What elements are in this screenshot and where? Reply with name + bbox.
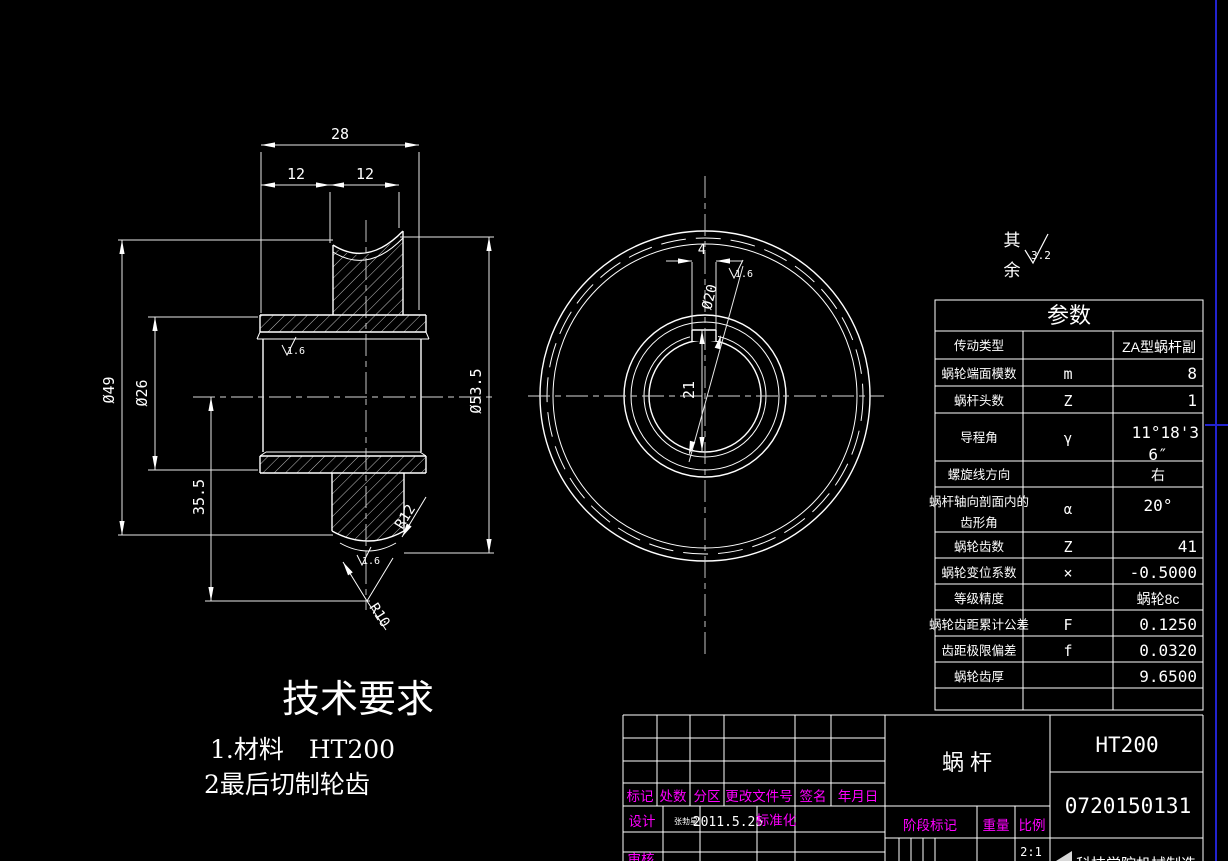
scale-value: 2:1 [1020, 845, 1042, 859]
cad-drawing-screen: 28 12 12 Ø49 Ø26 35.5 Ø53.5 R12 R10 1.6 … [0, 0, 1228, 861]
parameter-table: 参数 传动类型 ZA型蜗杆副 蜗轮端面模数 m 8 蜗杆头数 Z 1 导程角 γ… [929, 300, 1203, 710]
param-label: 蜗轮齿距累计公差 [929, 617, 1029, 632]
ext-lines-12 [330, 192, 399, 243]
param-value: 0.0320 [1139, 641, 1197, 660]
param-value-line1: 11°18'3 [1132, 423, 1199, 442]
param-label: 齿距极限偏差 [941, 643, 1016, 658]
param-symbol: F [1063, 616, 1072, 634]
col-date: 年月日 [838, 789, 879, 804]
design-label: 设计 [629, 814, 656, 829]
param-symbol: × [1063, 564, 1072, 582]
weight-label: 重量 [983, 818, 1010, 833]
audit-label: 审核 [628, 852, 655, 861]
tech-req-item-1: 1.材料 HT200 [210, 735, 395, 764]
param-label-line1: 蜗杆轴向剖面内的 [929, 494, 1029, 509]
tech-req-title: 技术要求 [282, 677, 434, 721]
scale-label: 比例 [1019, 818, 1046, 833]
roughness-general-value: 3.2 [1031, 249, 1051, 262]
title-block: 标记 处数 分区 更改文件号 签名 年月日 设计 张勃星 2011.5.25 标… [623, 715, 1203, 861]
dim-d20: Ø20 [699, 283, 721, 311]
roughness-value: 1.6 [362, 556, 380, 567]
param-value: 1 [1187, 391, 1197, 410]
drawing-canvas: 28 12 12 Ø49 Ø26 35.5 Ø53.5 R12 R10 1.6 … [0, 0, 1228, 861]
col-mark: 标记 [627, 789, 654, 804]
dim-28: 28 [331, 125, 349, 143]
hatch-band [260, 456, 426, 473]
param-symbol: f [1063, 642, 1072, 660]
param-value: 20° [1144, 496, 1173, 515]
dim-4: 4 [698, 242, 706, 258]
param-value: -0.5000 [1130, 563, 1197, 582]
param-label: 导程角 [960, 430, 998, 445]
dim-12b: 12 [356, 165, 374, 183]
param-value: 蜗轮8c [1137, 591, 1180, 607]
part-name: 蜗 杆 [942, 750, 992, 775]
param-value: 8 [1187, 364, 1197, 383]
roughness-value: 1.6 [735, 269, 753, 280]
flange-chamfer [257, 332, 429, 339]
hatch-neck [332, 473, 404, 541]
r10-arrow [341, 561, 353, 576]
param-symbol: m [1063, 365, 1072, 383]
general-roughness-note: 其 余 3.2 [1004, 231, 1051, 280]
roughness-value: 1.6 [287, 346, 305, 357]
param-value: ZA型蜗杆副 [1122, 339, 1196, 355]
col-change-no: 更改文件号 [725, 789, 793, 804]
design-date: 2011.5.25 [693, 815, 763, 830]
standardization-label: 标准化 [756, 813, 797, 828]
d20-arrow-bottom [686, 441, 695, 456]
org-logo-mark [1056, 851, 1072, 861]
param-label: 蜗轮齿数 [954, 539, 1005, 554]
param-value: 41 [1178, 537, 1197, 556]
ext-lines-d26 [148, 317, 258, 470]
param-symbol: α [1064, 502, 1073, 518]
dim-d49: Ø49 [100, 376, 118, 403]
stage-mark-label: 阶段标记 [903, 818, 957, 833]
param-value: 右 [1151, 467, 1165, 483]
dim-21: 21 [680, 381, 698, 399]
front-view: 4 Ø20 21 1.6 [528, 176, 884, 658]
param-label: 螺旋线方向 [948, 467, 1011, 482]
param-label-line2: 齿形角 [960, 516, 998, 530]
param-symbol: γ [1064, 431, 1072, 447]
dim-d26: Ø26 [133, 379, 151, 406]
dim-355: 35.5 [190, 479, 208, 515]
param-label: 蜗轮端面模数 [941, 366, 1017, 381]
tech-requirements: 技术要求 1.材料 HT200 2最后切制轮齿 [204, 677, 434, 799]
param-symbol: Z [1063, 538, 1072, 556]
dim-12a: 12 [287, 165, 305, 183]
hatch-rim [333, 233, 403, 315]
org-name: 科技学院机械制造 [1076, 855, 1196, 861]
param-symbol: Z [1063, 392, 1072, 410]
param-label: 蜗轮齿厚 [954, 669, 1004, 684]
param-value: 0.1250 [1139, 615, 1197, 634]
param-label: 等级精度 [954, 591, 1005, 606]
col-signature: 签名 [800, 788, 827, 804]
param-label: 蜗杆头数 [954, 393, 1005, 408]
param-value-line2: 6″ [1148, 445, 1167, 464]
rest-label-top: 其 [1004, 231, 1021, 250]
col-qty: 处数 [660, 789, 688, 804]
param-label: 传动类型 [954, 338, 1004, 353]
param-label: 蜗轮变位系数 [941, 565, 1017, 580]
tech-req-item-2: 2最后切制轮齿 [204, 770, 370, 799]
param-table-title: 参数 [1047, 303, 1091, 328]
drawing-frame [1205, 0, 1228, 861]
revision-columns [657, 715, 885, 861]
dim-d535: Ø53.5 [467, 368, 485, 413]
rest-label-bottom: 余 [1004, 261, 1021, 280]
material: HT200 [1095, 733, 1158, 757]
param-value: 9.6500 [1139, 667, 1197, 686]
keyway-patch [690, 327, 718, 341]
throat-bottom-arc-inner [340, 543, 396, 551]
col-zone: 分区 [694, 789, 721, 804]
hatch-flange [260, 315, 426, 332]
drawing-number: 0720150131 [1065, 794, 1191, 818]
section-view: 28 12 12 Ø49 Ø26 35.5 Ø53.5 R12 R10 1.6 … [100, 125, 497, 630]
